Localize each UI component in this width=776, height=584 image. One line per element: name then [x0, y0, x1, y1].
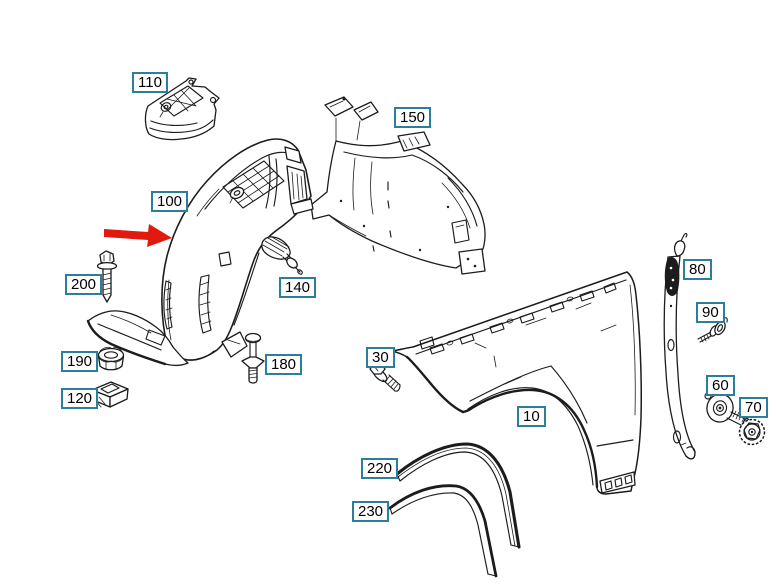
nut-70-drawing — [740, 420, 765, 445]
callout-120[interactable]: 120 — [61, 388, 98, 409]
callout-100[interactable]: 100 — [151, 191, 188, 212]
callout-60[interactable]: 60 — [706, 375, 735, 396]
callout-180[interactable]: 180 — [265, 354, 302, 375]
callout-230[interactable]: 230 — [352, 501, 389, 522]
callout-140[interactable]: 140 — [279, 277, 316, 298]
callout-30[interactable]: 30 — [366, 347, 395, 368]
callout-70[interactable]: 70 — [739, 397, 768, 418]
parts-diagram-canvas: 110 150 100 140 200 190 120 180 30 10 22… — [0, 0, 776, 584]
callout-150[interactable]: 150 — [394, 107, 431, 128]
diagram-drawing — [0, 0, 776, 584]
callout-90[interactable]: 90 — [696, 302, 725, 323]
screw-30-drawing — [370, 364, 400, 391]
callout-200[interactable]: 200 — [65, 274, 102, 295]
callout-110[interactable]: 110 — [132, 72, 168, 93]
callout-10[interactable]: 10 — [517, 406, 546, 427]
fastener-140-drawing — [262, 237, 303, 275]
callout-220[interactable]: 220 — [361, 458, 398, 479]
trim-230-drawing — [390, 486, 496, 576]
callout-80[interactable]: 80 — [683, 259, 712, 280]
rivet-180-drawing — [242, 334, 264, 384]
selection-arrow — [104, 224, 172, 247]
nut-190-drawing — [99, 347, 124, 369]
callout-190[interactable]: 190 — [61, 351, 98, 372]
